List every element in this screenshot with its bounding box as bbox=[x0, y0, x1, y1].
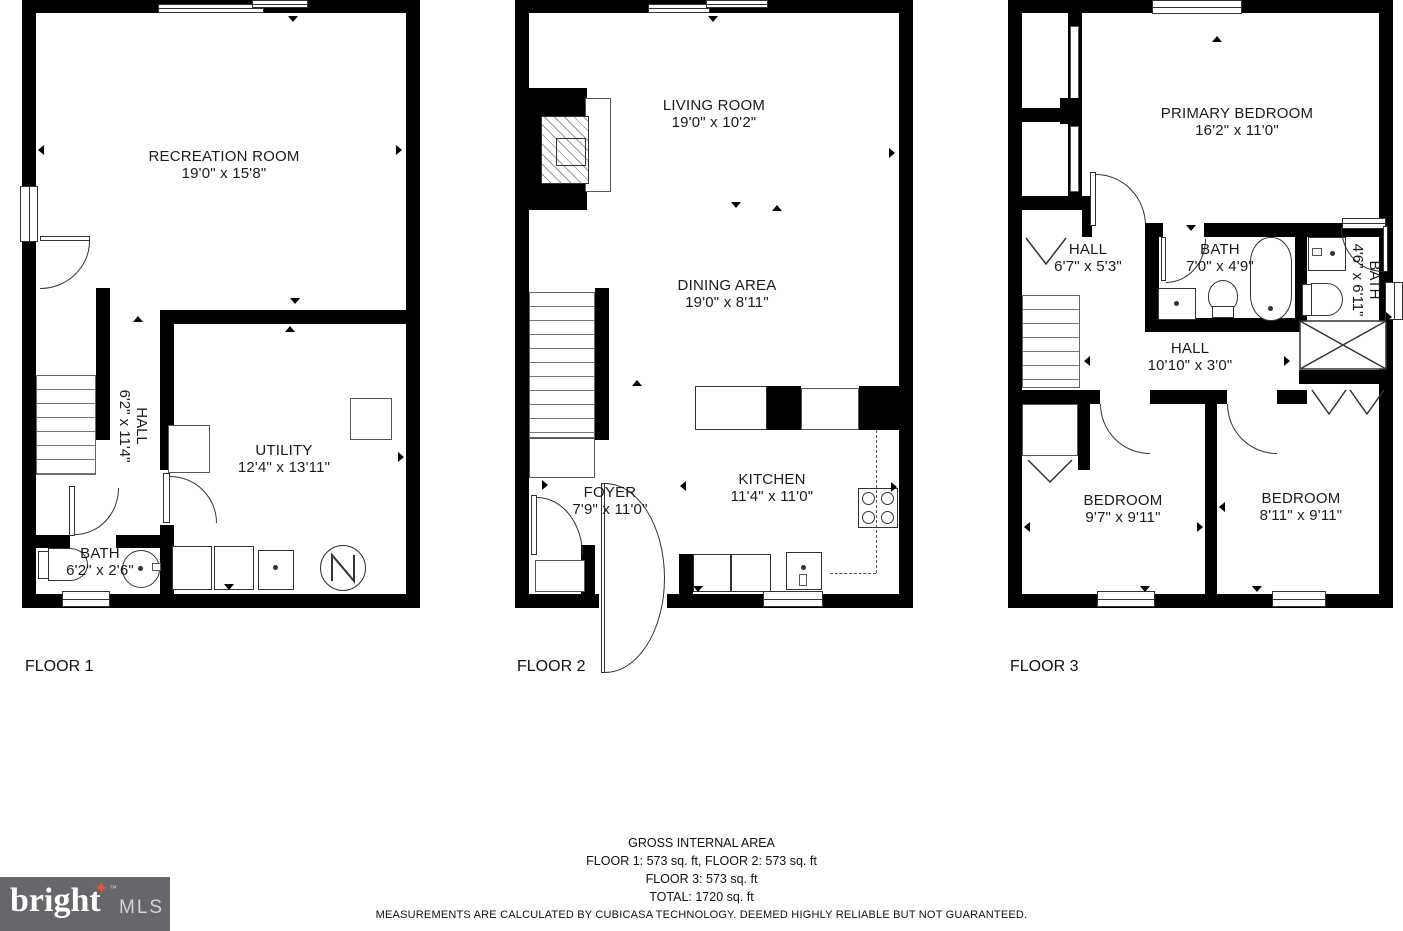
room-label: HALL 6'7" x 5'3" bbox=[1054, 241, 1122, 275]
arrow-marker bbox=[1386, 312, 1392, 322]
star-icon: ✦ bbox=[94, 879, 108, 899]
wall bbox=[1022, 390, 1100, 404]
toilet bbox=[1311, 283, 1343, 316]
window-symbol bbox=[1272, 591, 1326, 607]
room-dims: 4'6" x 6'11" bbox=[1349, 244, 1366, 317]
room-dims: 8'11" x 9'11" bbox=[1260, 507, 1343, 524]
room-label: PRIMARY BEDROOM 16'2" x 11'0" bbox=[1161, 105, 1313, 139]
door-arc bbox=[1100, 404, 1150, 454]
drain-dot bbox=[1268, 306, 1273, 311]
room-name: BEDROOM bbox=[1260, 490, 1343, 507]
footer-heading: GROSS INTERNAL AREA bbox=[0, 836, 1403, 851]
room-dims: 16'2" x 11'0" bbox=[1161, 122, 1313, 139]
wall bbox=[1022, 108, 1068, 122]
wall bbox=[1299, 370, 1393, 384]
wall bbox=[1008, 0, 1022, 608]
sliding-closet-door bbox=[1070, 126, 1079, 192]
floorplan-floor-3: PRIMARY BEDROOM 16'2" x 11'0" HALL 6'7" … bbox=[0, 0, 1403, 931]
wall bbox=[1159, 223, 1163, 237]
room-name: BATH bbox=[1366, 244, 1383, 317]
room-name: BATH bbox=[1186, 241, 1254, 258]
wall bbox=[1008, 594, 1393, 608]
room-label: HALL 10'10" x 3'0" bbox=[1148, 340, 1233, 374]
room-label: BATH 4'6" x 6'11" bbox=[1349, 244, 1383, 317]
room-name: BEDROOM bbox=[1084, 492, 1163, 509]
footer-area-line-2: FLOOR 3: 573 sq. ft bbox=[0, 872, 1403, 887]
closet bbox=[1022, 404, 1078, 456]
wall bbox=[1008, 196, 1090, 210]
wall bbox=[1204, 223, 1295, 237]
drain-dot bbox=[1174, 301, 1179, 306]
toilet-base bbox=[1212, 306, 1234, 318]
bright-mls-logo: bright ✦ ™ MLS bbox=[0, 877, 170, 931]
room-label: BATH 7'0" x 4'9" bbox=[1186, 241, 1254, 275]
room-name: PRIMARY BEDROOM bbox=[1161, 105, 1313, 122]
wall bbox=[1205, 390, 1217, 608]
arrow-marker bbox=[1384, 502, 1390, 512]
arrow-marker bbox=[1284, 356, 1290, 366]
room-label: BEDROOM 8'11" x 9'11" bbox=[1260, 490, 1343, 524]
wall bbox=[1277, 390, 1307, 404]
closet-rail-symbol bbox=[1350, 390, 1384, 414]
room-dims: 10'10" x 3'0" bbox=[1148, 357, 1233, 374]
door-arc bbox=[1096, 174, 1146, 226]
closet-crossed-box bbox=[1299, 320, 1387, 370]
drain-dot bbox=[1330, 251, 1335, 256]
room-label: BEDROOM 9'7" x 9'11" bbox=[1084, 492, 1163, 526]
arrow-marker bbox=[1186, 225, 1196, 231]
staircase bbox=[1022, 295, 1080, 388]
wall bbox=[1078, 404, 1090, 470]
footer-area-line-1: FLOOR 1: 573 sq. ft, FLOOR 2: 573 sq. ft bbox=[0, 854, 1403, 869]
arrow-marker bbox=[1212, 36, 1222, 42]
floorplan-canvas: RECREATION ROOM 19'0" x 15'8" HALL 6'2" … bbox=[0, 0, 1403, 931]
logo-mls-text: MLS bbox=[119, 897, 164, 919]
arrow-marker bbox=[1140, 586, 1150, 592]
faucet bbox=[1312, 248, 1322, 256]
wall bbox=[1145, 223, 1159, 332]
closet-rail-symbol bbox=[1028, 460, 1072, 482]
footer-total-line: TOTAL: 1720 sq. ft bbox=[0, 890, 1403, 905]
door-leaf bbox=[1383, 226, 1388, 272]
room-name: HALL bbox=[1054, 241, 1122, 258]
room-dims: 9'7" x 9'11" bbox=[1084, 509, 1163, 526]
door-arc bbox=[1227, 404, 1277, 454]
footer-disclaimer: MEASUREMENTS ARE CALCULATED BY CUBICASA … bbox=[0, 908, 1403, 923]
closet-rail-symbol bbox=[1312, 390, 1346, 414]
sliding-closet-door bbox=[1070, 26, 1079, 100]
floor-label: FLOOR 3 bbox=[1010, 658, 1078, 676]
logo-brand-text: bright bbox=[10, 882, 101, 920]
room-name: HALL bbox=[1148, 340, 1233, 357]
room-dims: 6'7" x 5'3" bbox=[1054, 258, 1122, 275]
arrow-marker bbox=[1197, 522, 1203, 532]
gross-internal-area-note: GROSS INTERNAL AREA FLOOR 1: 573 sq. ft,… bbox=[0, 836, 1403, 926]
window-symbol bbox=[1097, 591, 1155, 607]
arrow-marker bbox=[1219, 502, 1225, 512]
arrow-marker bbox=[1084, 356, 1090, 366]
arrow-marker bbox=[1024, 522, 1030, 532]
window-symbol bbox=[1152, 0, 1242, 14]
arrow-marker bbox=[1252, 586, 1262, 592]
trademark-symbol: ™ bbox=[109, 884, 117, 893]
room-dims: 7'0" x 4'9" bbox=[1186, 258, 1254, 275]
